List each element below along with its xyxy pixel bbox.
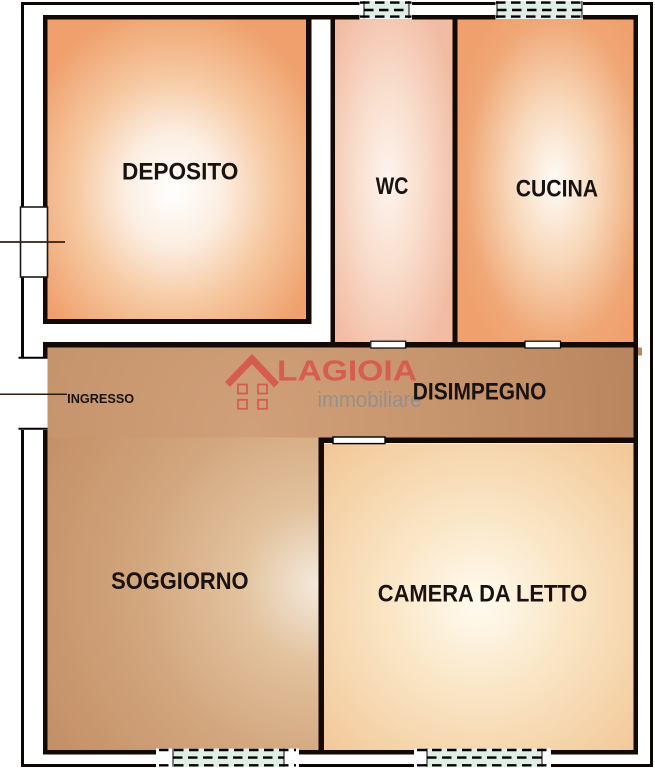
svg-text:CAMERA DA LETTO: CAMERA DA LETTO	[378, 581, 588, 608]
svg-text:DEPOSITO: DEPOSITO	[122, 159, 238, 186]
svg-text:CUCINA: CUCINA	[516, 176, 599, 203]
svg-text:INGRESSO: INGRESSO	[67, 392, 134, 406]
svg-text:WC: WC	[376, 173, 409, 200]
svg-text:DISIMPEGNO: DISIMPEGNO	[413, 379, 547, 406]
svg-text:immobiliare: immobiliare	[318, 387, 422, 412]
svg-text:SOGGIORNO: SOGGIORNO	[111, 568, 249, 595]
svg-text:LAGIOIA: LAGIOIA	[277, 355, 417, 387]
